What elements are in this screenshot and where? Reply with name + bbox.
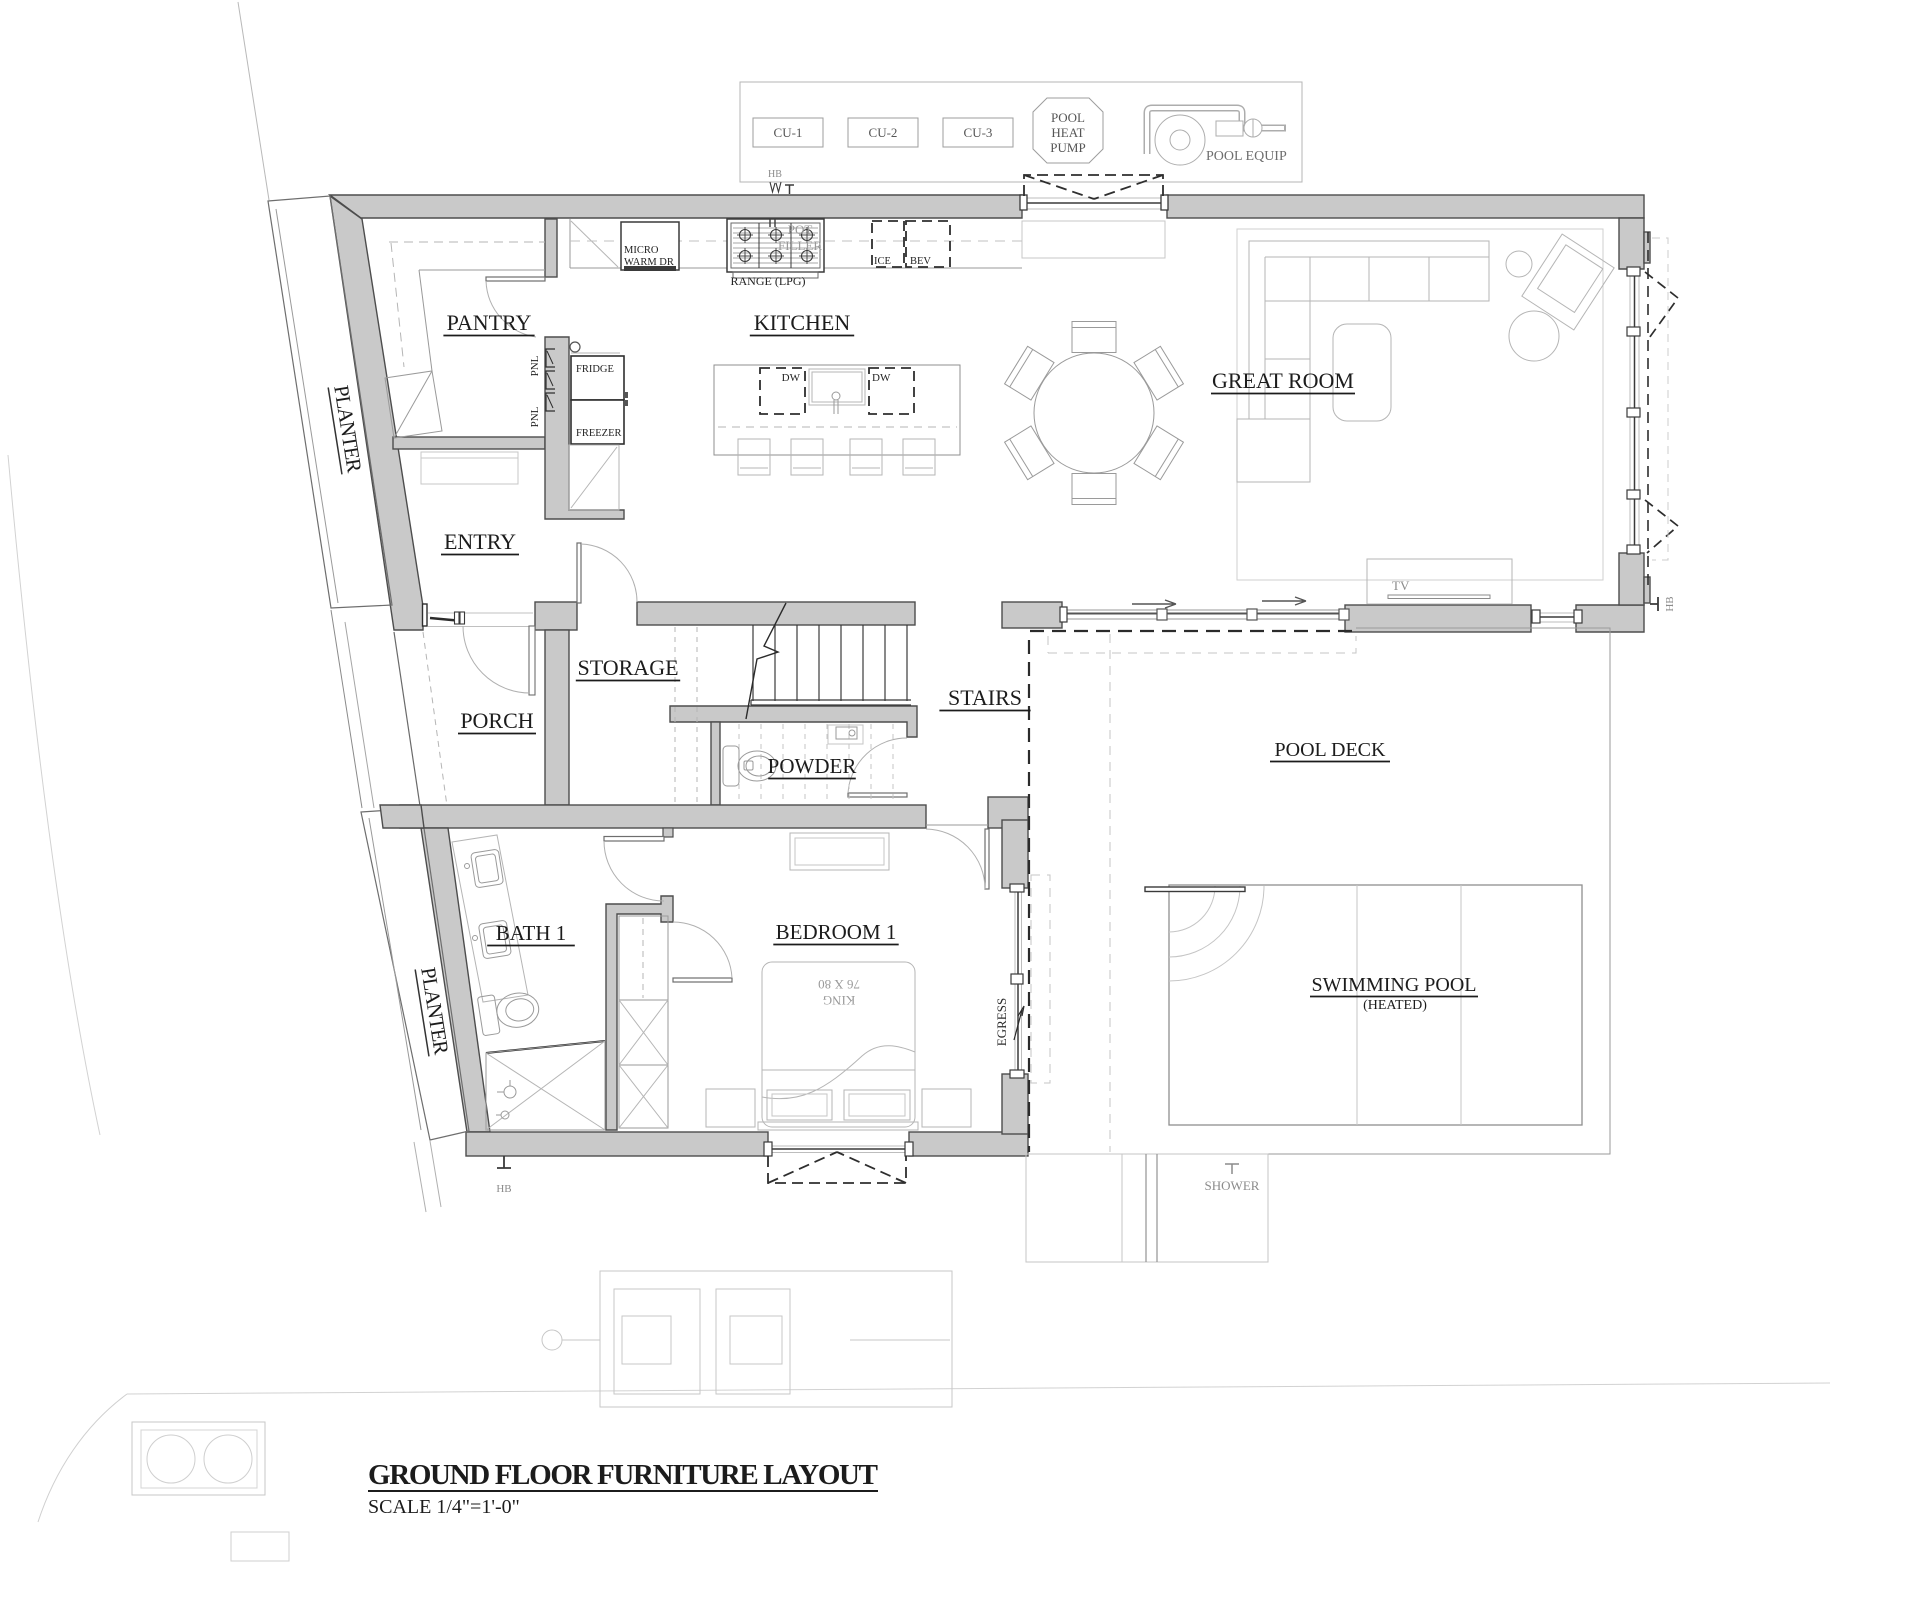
- svg-text:CU-2: CU-2: [869, 125, 898, 140]
- svg-text:BEDROOM 1: BEDROOM 1: [776, 920, 897, 944]
- svg-text:ENTRY: ENTRY: [444, 529, 516, 554]
- svg-text:DW: DW: [872, 372, 891, 384]
- svg-text:STAIRS: STAIRS: [948, 685, 1022, 710]
- svg-text:SWIMMING POOL: SWIMMING POOL: [1312, 974, 1477, 996]
- svg-text:STORAGE: STORAGE: [577, 655, 678, 680]
- svg-text:KITCHEN: KITCHEN: [754, 310, 851, 335]
- svg-text:TV: TV: [1392, 578, 1410, 593]
- svg-text:DW: DW: [782, 372, 801, 384]
- svg-text:HB: HB: [496, 1183, 511, 1195]
- svg-text:FREEZER: FREEZER: [576, 428, 622, 439]
- svg-text:GROUND FLOOR FURNITURE LAYOUT: GROUND FLOOR FURNITURE LAYOUT: [368, 1459, 878, 1491]
- svg-text:FILLER: FILLER: [778, 238, 822, 253]
- svg-text:ICE: ICE: [874, 256, 891, 267]
- svg-text:CU-3: CU-3: [964, 125, 993, 140]
- svg-text:PUMP: PUMP: [1050, 140, 1085, 155]
- svg-text:POWDER: POWDER: [768, 754, 857, 778]
- svg-text:SHOWER: SHOWER: [1205, 1178, 1260, 1193]
- svg-text:PNL: PNL: [529, 355, 541, 376]
- svg-text:PORCH: PORCH: [460, 708, 533, 733]
- svg-text:POOL: POOL: [1051, 110, 1085, 125]
- svg-text:BATH 1: BATH 1: [496, 921, 567, 945]
- svg-text:POOL EQUIP: POOL EQUIP: [1206, 149, 1287, 164]
- svg-text:KING: KING: [823, 993, 856, 1008]
- svg-text:POT: POT: [788, 222, 813, 237]
- svg-text:CU-1: CU-1: [774, 125, 803, 140]
- svg-text:76 X 80: 76 X 80: [818, 977, 860, 992]
- svg-text:EGRESS: EGRESS: [994, 998, 1009, 1046]
- svg-text:FRIDGE: FRIDGE: [576, 364, 614, 375]
- svg-text:(HEATED): (HEATED): [1363, 998, 1427, 1013]
- svg-text:GREAT ROOM: GREAT ROOM: [1212, 368, 1354, 393]
- svg-text:BEV: BEV: [910, 256, 931, 267]
- svg-text:SCALE 1/4"=1'-0": SCALE 1/4"=1'-0": [368, 1496, 520, 1518]
- svg-text:PANTRY: PANTRY: [447, 310, 532, 335]
- svg-text:MICRO: MICRO: [624, 245, 659, 256]
- svg-text:HB: HB: [1664, 596, 1676, 611]
- svg-text:WARM DR: WARM DR: [624, 257, 674, 268]
- svg-text:HB: HB: [768, 169, 782, 180]
- svg-text:PNL: PNL: [529, 406, 541, 427]
- svg-text:RANGE (LPG): RANGE (LPG): [731, 274, 806, 288]
- svg-text:POOL DECK: POOL DECK: [1275, 739, 1386, 761]
- svg-text:HEAT: HEAT: [1051, 125, 1084, 140]
